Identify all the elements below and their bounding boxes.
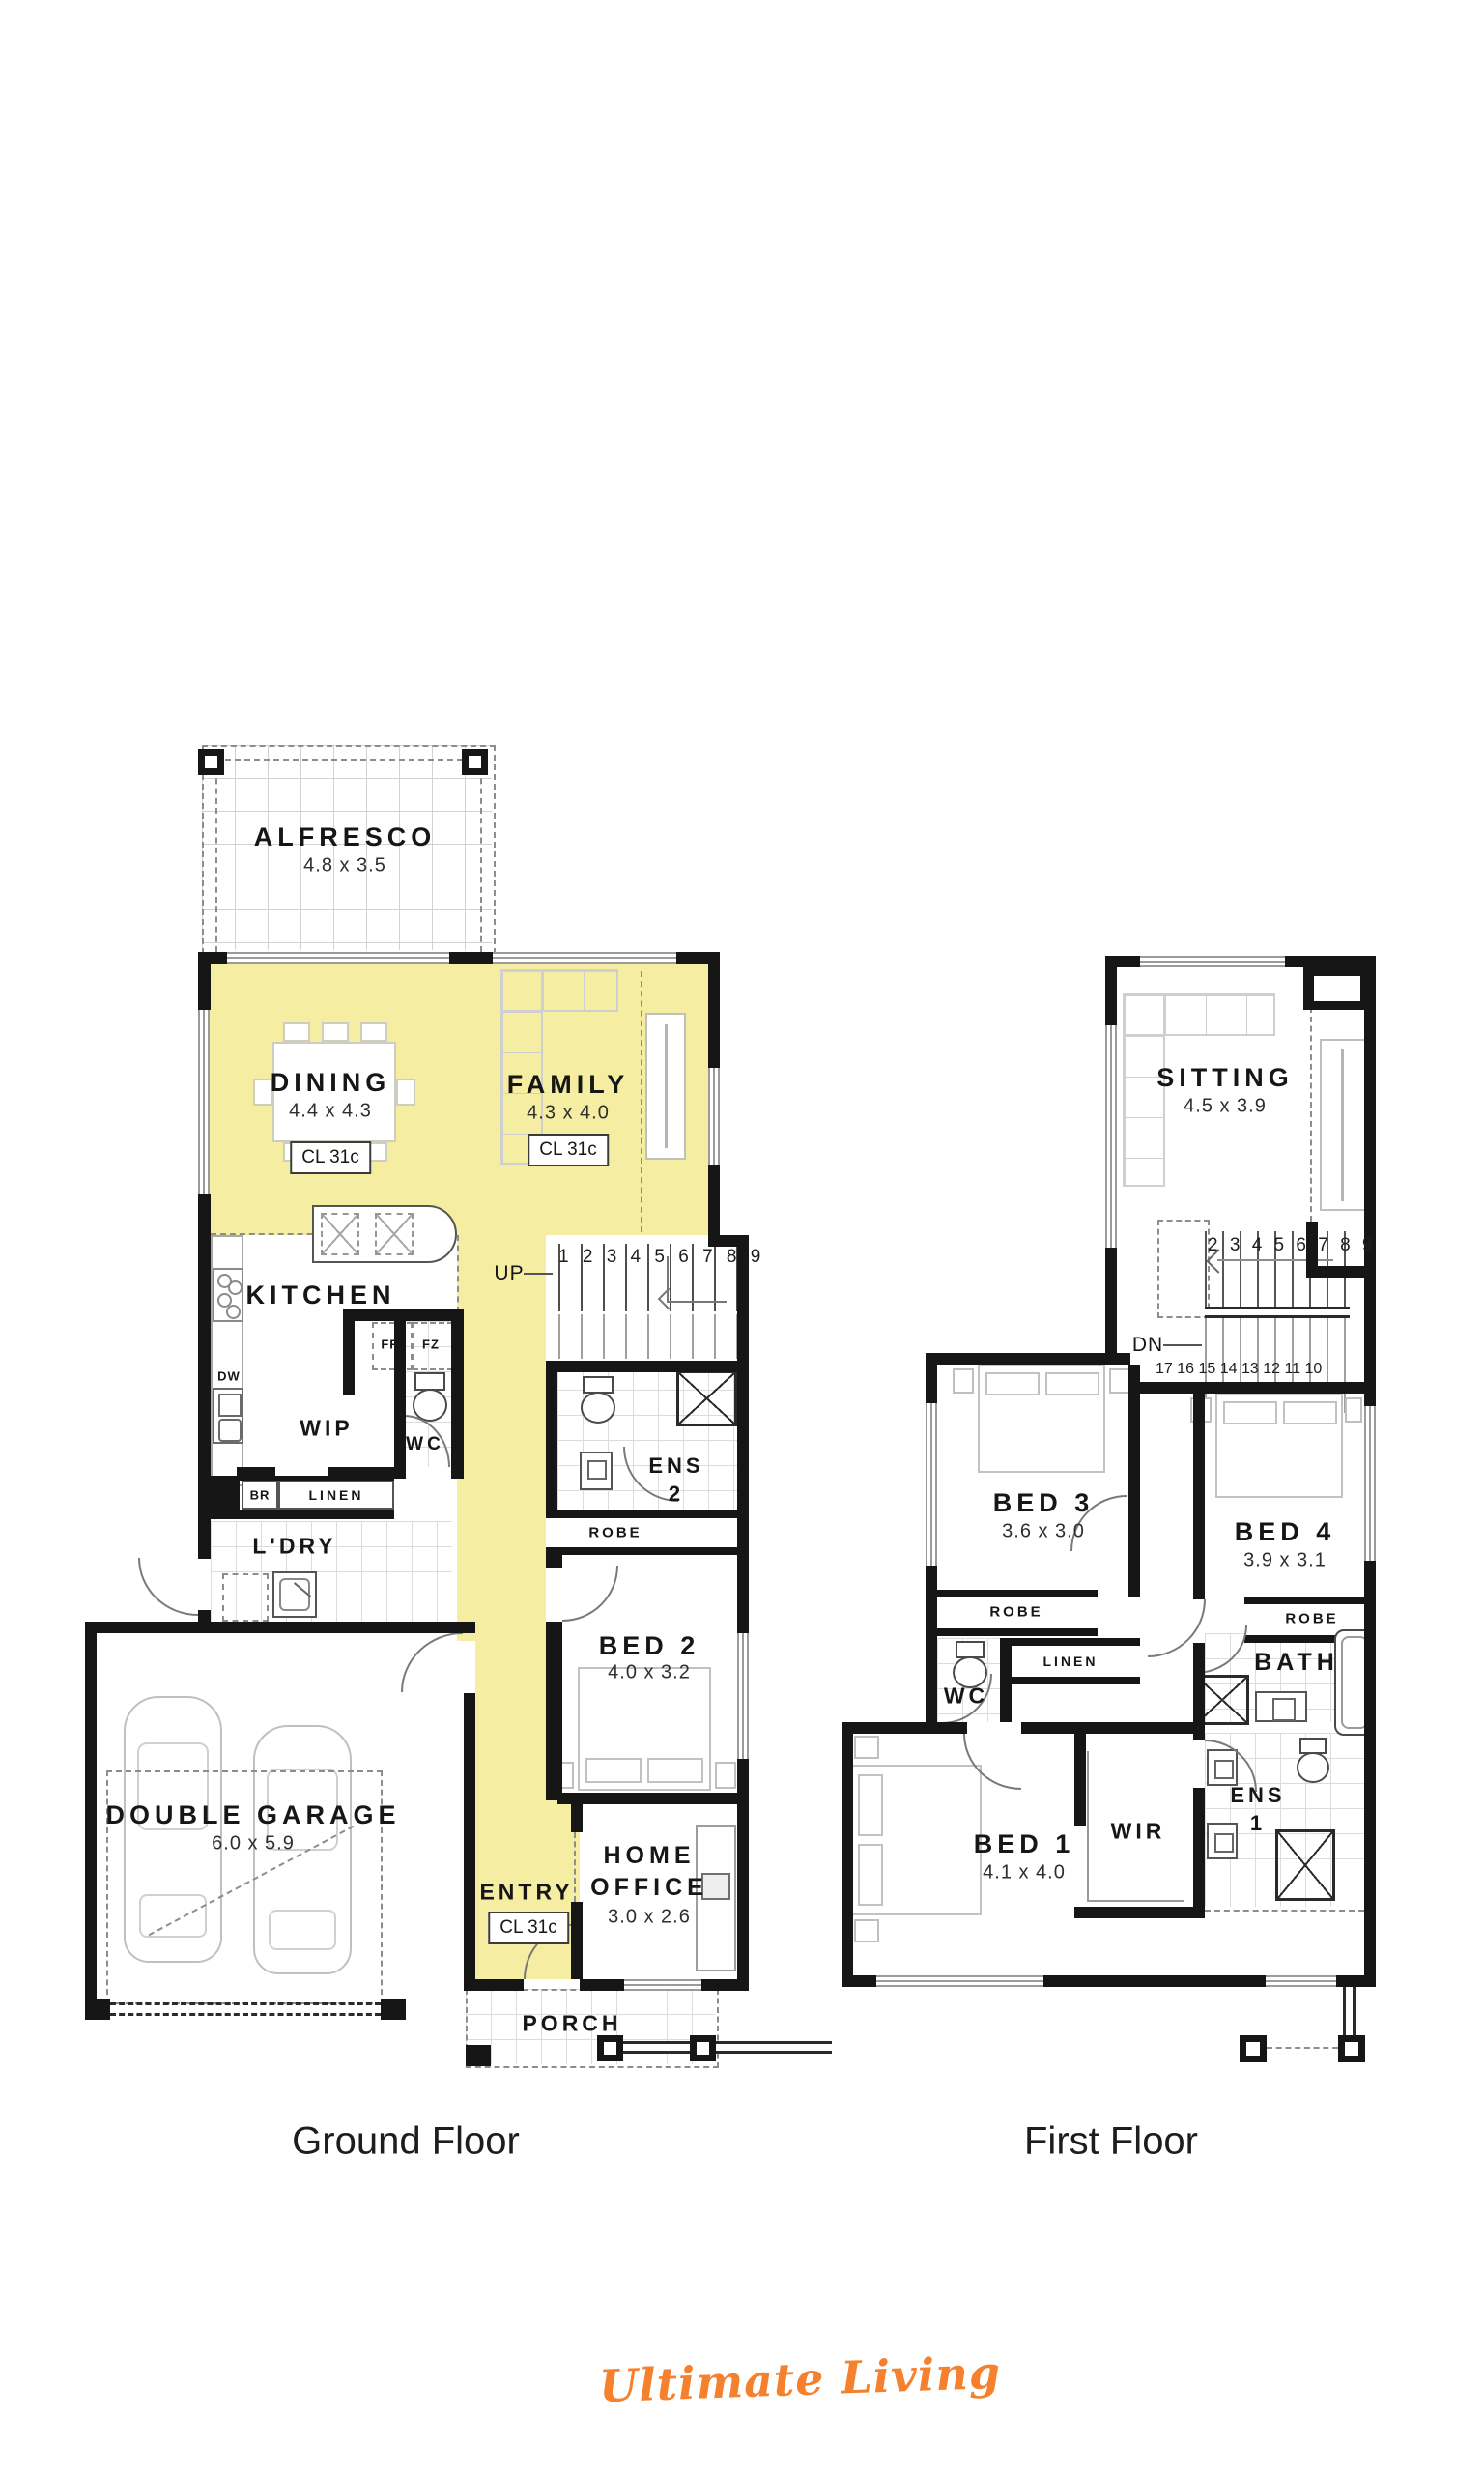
- garage-door-arc: [401, 1632, 463, 1692]
- corridor-lower-highlight: [475, 1641, 546, 1800]
- wall: [1193, 1643, 1205, 1740]
- wall: [842, 1722, 967, 1734]
- wall: [926, 1365, 937, 1403]
- family-niche-dashed: [641, 971, 642, 1232]
- porch-post: [597, 2035, 623, 2061]
- cupboard-mirror: [1341, 1049, 1344, 1201]
- dining-chair: [360, 1022, 387, 1042]
- wall: [708, 964, 720, 1068]
- wall: [546, 1365, 557, 1512]
- dining-label: DINING: [271, 1068, 391, 1097]
- bed4-dims: 3.9 x 3.1: [1243, 1550, 1327, 1572]
- wall: [546, 1549, 562, 1568]
- balcony-post: [1240, 2035, 1267, 2062]
- fridge-label: FR: [381, 1338, 399, 1352]
- garage-label: DOUBLE GARAGE: [105, 1800, 400, 1829]
- window: [227, 952, 449, 964]
- wall: [198, 952, 227, 964]
- wall: [1336, 1975, 1376, 1987]
- dining-dims: 4.4 x 4.3: [289, 1101, 372, 1123]
- family-ceiling: CL 31c: [528, 1134, 609, 1166]
- window: [737, 1633, 749, 1759]
- laundry-tub: [272, 1571, 317, 1618]
- wall: [1306, 1266, 1376, 1278]
- side-table: [1109, 1368, 1130, 1394]
- bed1-bed: [850, 1765, 982, 1915]
- wall: [1074, 1734, 1086, 1826]
- shower: [1275, 1829, 1335, 1901]
- bed2-door-arc: [562, 1566, 618, 1622]
- bed4-bed: [1215, 1394, 1343, 1498]
- stair-numbers-lower: 17 16 15 14 13 12 11 10: [1156, 1361, 1300, 1378]
- garage-door-post: [381, 1999, 406, 2020]
- alfresco-label: ALFRESCO: [254, 822, 437, 851]
- wip-label: WIP: [300, 1416, 353, 1442]
- wall: [198, 1194, 211, 1559]
- cooktop: [213, 1268, 243, 1322]
- wall: [1105, 956, 1140, 967]
- bed3-dims: 3.6 x 3.0: [1002, 1521, 1085, 1543]
- wall: [1193, 1394, 1205, 1599]
- wall: [708, 1235, 749, 1247]
- alfresco-post-left: [198, 749, 224, 775]
- wall: [328, 1467, 406, 1479]
- wall: [580, 1979, 624, 1991]
- wall: [926, 1566, 937, 1722]
- porch-label: PORCH: [522, 2011, 621, 2037]
- side-table: [715, 1762, 736, 1789]
- wall: [926, 1353, 1130, 1365]
- stairwell-void-dashed: [1157, 1220, 1210, 1318]
- wall: [708, 1165, 720, 1235]
- wall: [343, 1309, 355, 1395]
- side-table: [854, 1736, 879, 1759]
- bed2-robe-label: ROBE: [588, 1525, 642, 1541]
- wc-ff-label: WC: [944, 1683, 988, 1710]
- toilet: [410, 1372, 450, 1423]
- wall: [449, 952, 493, 964]
- wall: [464, 1693, 475, 1979]
- ens1-label-1: ENS: [1230, 1783, 1285, 1808]
- dining-chair: [283, 1022, 310, 1042]
- wall: [355, 1309, 451, 1321]
- window: [708, 1068, 720, 1165]
- bed4-robe-label: ROBE: [1285, 1611, 1338, 1627]
- porch-post: [690, 2035, 716, 2061]
- side-table: [854, 1919, 879, 1942]
- ens1-dash-boundary: [1205, 1910, 1364, 1912]
- window: [624, 1979, 701, 1991]
- office-dims: 3.0 x 2.6: [608, 1907, 691, 1929]
- stair-mid-rail: [1205, 1307, 1350, 1318]
- window: [876, 1975, 1043, 1987]
- garage-door: [110, 2002, 381, 2016]
- bed4-label: BED 4: [1235, 1517, 1336, 1546]
- dn-label: DN: [1132, 1334, 1163, 1357]
- office-opening-dashed: [574, 1832, 576, 1902]
- dining-chair: [322, 1022, 349, 1042]
- vanity: [580, 1452, 613, 1490]
- laundry-door-arc: [138, 1558, 198, 1616]
- office-label-2: OFFICE: [590, 1874, 708, 1901]
- window: [1105, 1025, 1117, 1248]
- wall: [1285, 956, 1376, 967]
- wall: [1074, 1907, 1205, 1918]
- wall: [211, 1476, 240, 1514]
- brand-logo: Ultimate Living: [598, 2346, 1002, 2412]
- wall: [198, 1610, 211, 1622]
- wall: [1043, 1975, 1266, 1987]
- wall: [842, 1734, 853, 1987]
- wall: [1128, 1365, 1140, 1597]
- balcony-dash: [1267, 2047, 1338, 2049]
- ens1-vanity: [1207, 1823, 1238, 1859]
- entry-label: ENTRY: [479, 1880, 573, 1906]
- washer-space: [222, 1573, 269, 1622]
- tv-screen: [665, 1024, 668, 1148]
- wc-label: WC: [406, 1434, 444, 1455]
- stair-numbers-gf: 1 2 3 4 5 6 7 8 9: [558, 1247, 738, 1268]
- toilet: [1295, 1738, 1331, 1784]
- wall: [198, 964, 211, 1010]
- niche-cupboard: [1314, 976, 1360, 1001]
- island-light: [375, 1213, 414, 1255]
- linen-label-ff: LINEN: [1043, 1654, 1099, 1669]
- wir-label: WIR: [1111, 1819, 1166, 1845]
- up-label: UP: [494, 1262, 524, 1285]
- bed2-bed: [578, 1667, 711, 1791]
- window: [1266, 1975, 1336, 1987]
- dishwasher-label: DW: [217, 1369, 241, 1384]
- window: [1364, 1406, 1376, 1561]
- wall: [737, 1247, 749, 1633]
- wall: [1364, 1561, 1376, 1987]
- wall: [842, 1975, 876, 1987]
- bed3-robe-label: ROBE: [989, 1604, 1042, 1621]
- wall: [464, 1979, 524, 1991]
- bed3-label: BED 3: [993, 1488, 1095, 1517]
- ground-floor-caption: Ground Floor: [292, 2120, 520, 2164]
- entry-ceiling: CL 31c: [488, 1912, 569, 1944]
- wall: [1140, 1382, 1376, 1394]
- family-dims: 4.3 x 4.0: [527, 1103, 610, 1125]
- freezer-label: FZ: [422, 1338, 440, 1352]
- wall: [85, 1633, 97, 2010]
- side-table: [953, 1368, 974, 1394]
- bed3-bed: [978, 1365, 1105, 1473]
- wall: [571, 1902, 583, 1979]
- wall: [1193, 1788, 1205, 1918]
- porch-post: [466, 2045, 491, 2066]
- ens2-label-1: ENS: [648, 1453, 703, 1479]
- alfresco-post-right: [462, 749, 488, 775]
- wall: [237, 1467, 275, 1479]
- floorplan-sheet: ALFRESCO 4.8 x 3.5 DINING 4.4 x 4.3 CL 3…: [0, 0, 1484, 2474]
- wall: [676, 952, 720, 964]
- ens1-label-2: 1: [1250, 1811, 1266, 1836]
- wall: [557, 1793, 749, 1804]
- garage-door-post: [85, 1999, 110, 2020]
- dining-chair: [396, 1079, 415, 1106]
- sitting-niche-dashed: [1310, 1007, 1312, 1222]
- first-floor-caption: First Floor: [1024, 2120, 1198, 2164]
- side-table: [1345, 1397, 1362, 1423]
- window: [926, 1403, 937, 1566]
- wall: [1364, 967, 1376, 1406]
- toilet: [578, 1376, 618, 1424]
- linen-label-gf: LINEN: [309, 1487, 364, 1503]
- bed2-robe: [546, 1510, 749, 1555]
- garage-dims: 6.0 x 5.9: [212, 1833, 295, 1855]
- window: [1140, 956, 1285, 967]
- porch-rail: [716, 2041, 832, 2054]
- corridor-highlight: [457, 1235, 546, 1641]
- bath-vanity: [1255, 1691, 1307, 1722]
- broom-label: BR: [250, 1488, 271, 1503]
- balcony-post: [1338, 2035, 1365, 2062]
- stairs-lower-flight: [558, 1314, 738, 1359]
- family-label: FAMILY: [507, 1070, 630, 1099]
- ldry-label: L'DRY: [252, 1534, 336, 1560]
- balcony-rail: [1343, 1987, 1356, 2037]
- wall: [571, 1804, 583, 1832]
- window: [493, 952, 676, 964]
- office-label-1: HOME: [604, 1842, 696, 1869]
- wir-shelf-line: [1087, 1751, 1089, 1902]
- up-leader: [524, 1273, 553, 1275]
- window: [198, 1010, 210, 1194]
- sitting-label: SITTING: [1156, 1063, 1294, 1092]
- bath-label: BATH: [1254, 1649, 1339, 1676]
- wall: [451, 1309, 464, 1479]
- dn-leader: [1163, 1344, 1202, 1346]
- stair-numbers-upper: 2 3 4 5 6 7 8 9: [1208, 1235, 1346, 1256]
- island-light: [321, 1213, 359, 1255]
- wall: [1000, 1638, 1012, 1722]
- shower: [676, 1370, 737, 1426]
- wir-shelf-line: [1087, 1900, 1184, 1902]
- ens2-label-2: 2: [669, 1482, 684, 1507]
- kitchen-sink: [213, 1388, 243, 1444]
- wall: [546, 1622, 562, 1800]
- corridor-boundary-dashed: [457, 1235, 459, 1312]
- wall: [701, 1979, 749, 1991]
- wall: [546, 1361, 749, 1372]
- bed2-label: BED 2: [599, 1631, 700, 1660]
- wall: [1021, 1722, 1193, 1734]
- porch-rail: [623, 2041, 690, 2054]
- wall: [1105, 967, 1117, 1025]
- bed2-dims: 4.0 x 3.2: [608, 1662, 691, 1684]
- sitting-dims: 4.5 x 3.9: [1184, 1096, 1267, 1118]
- bed1-dims: 4.1 x 4.0: [983, 1862, 1066, 1884]
- kitchen-label: KITCHEN: [246, 1280, 396, 1309]
- wall: [1105, 1248, 1117, 1356]
- alfresco-dims: 4.8 x 3.5: [303, 855, 386, 877]
- wall: [85, 1622, 475, 1633]
- dining-ceiling: CL 31c: [290, 1141, 371, 1174]
- bed1-label: BED 1: [974, 1829, 1075, 1858]
